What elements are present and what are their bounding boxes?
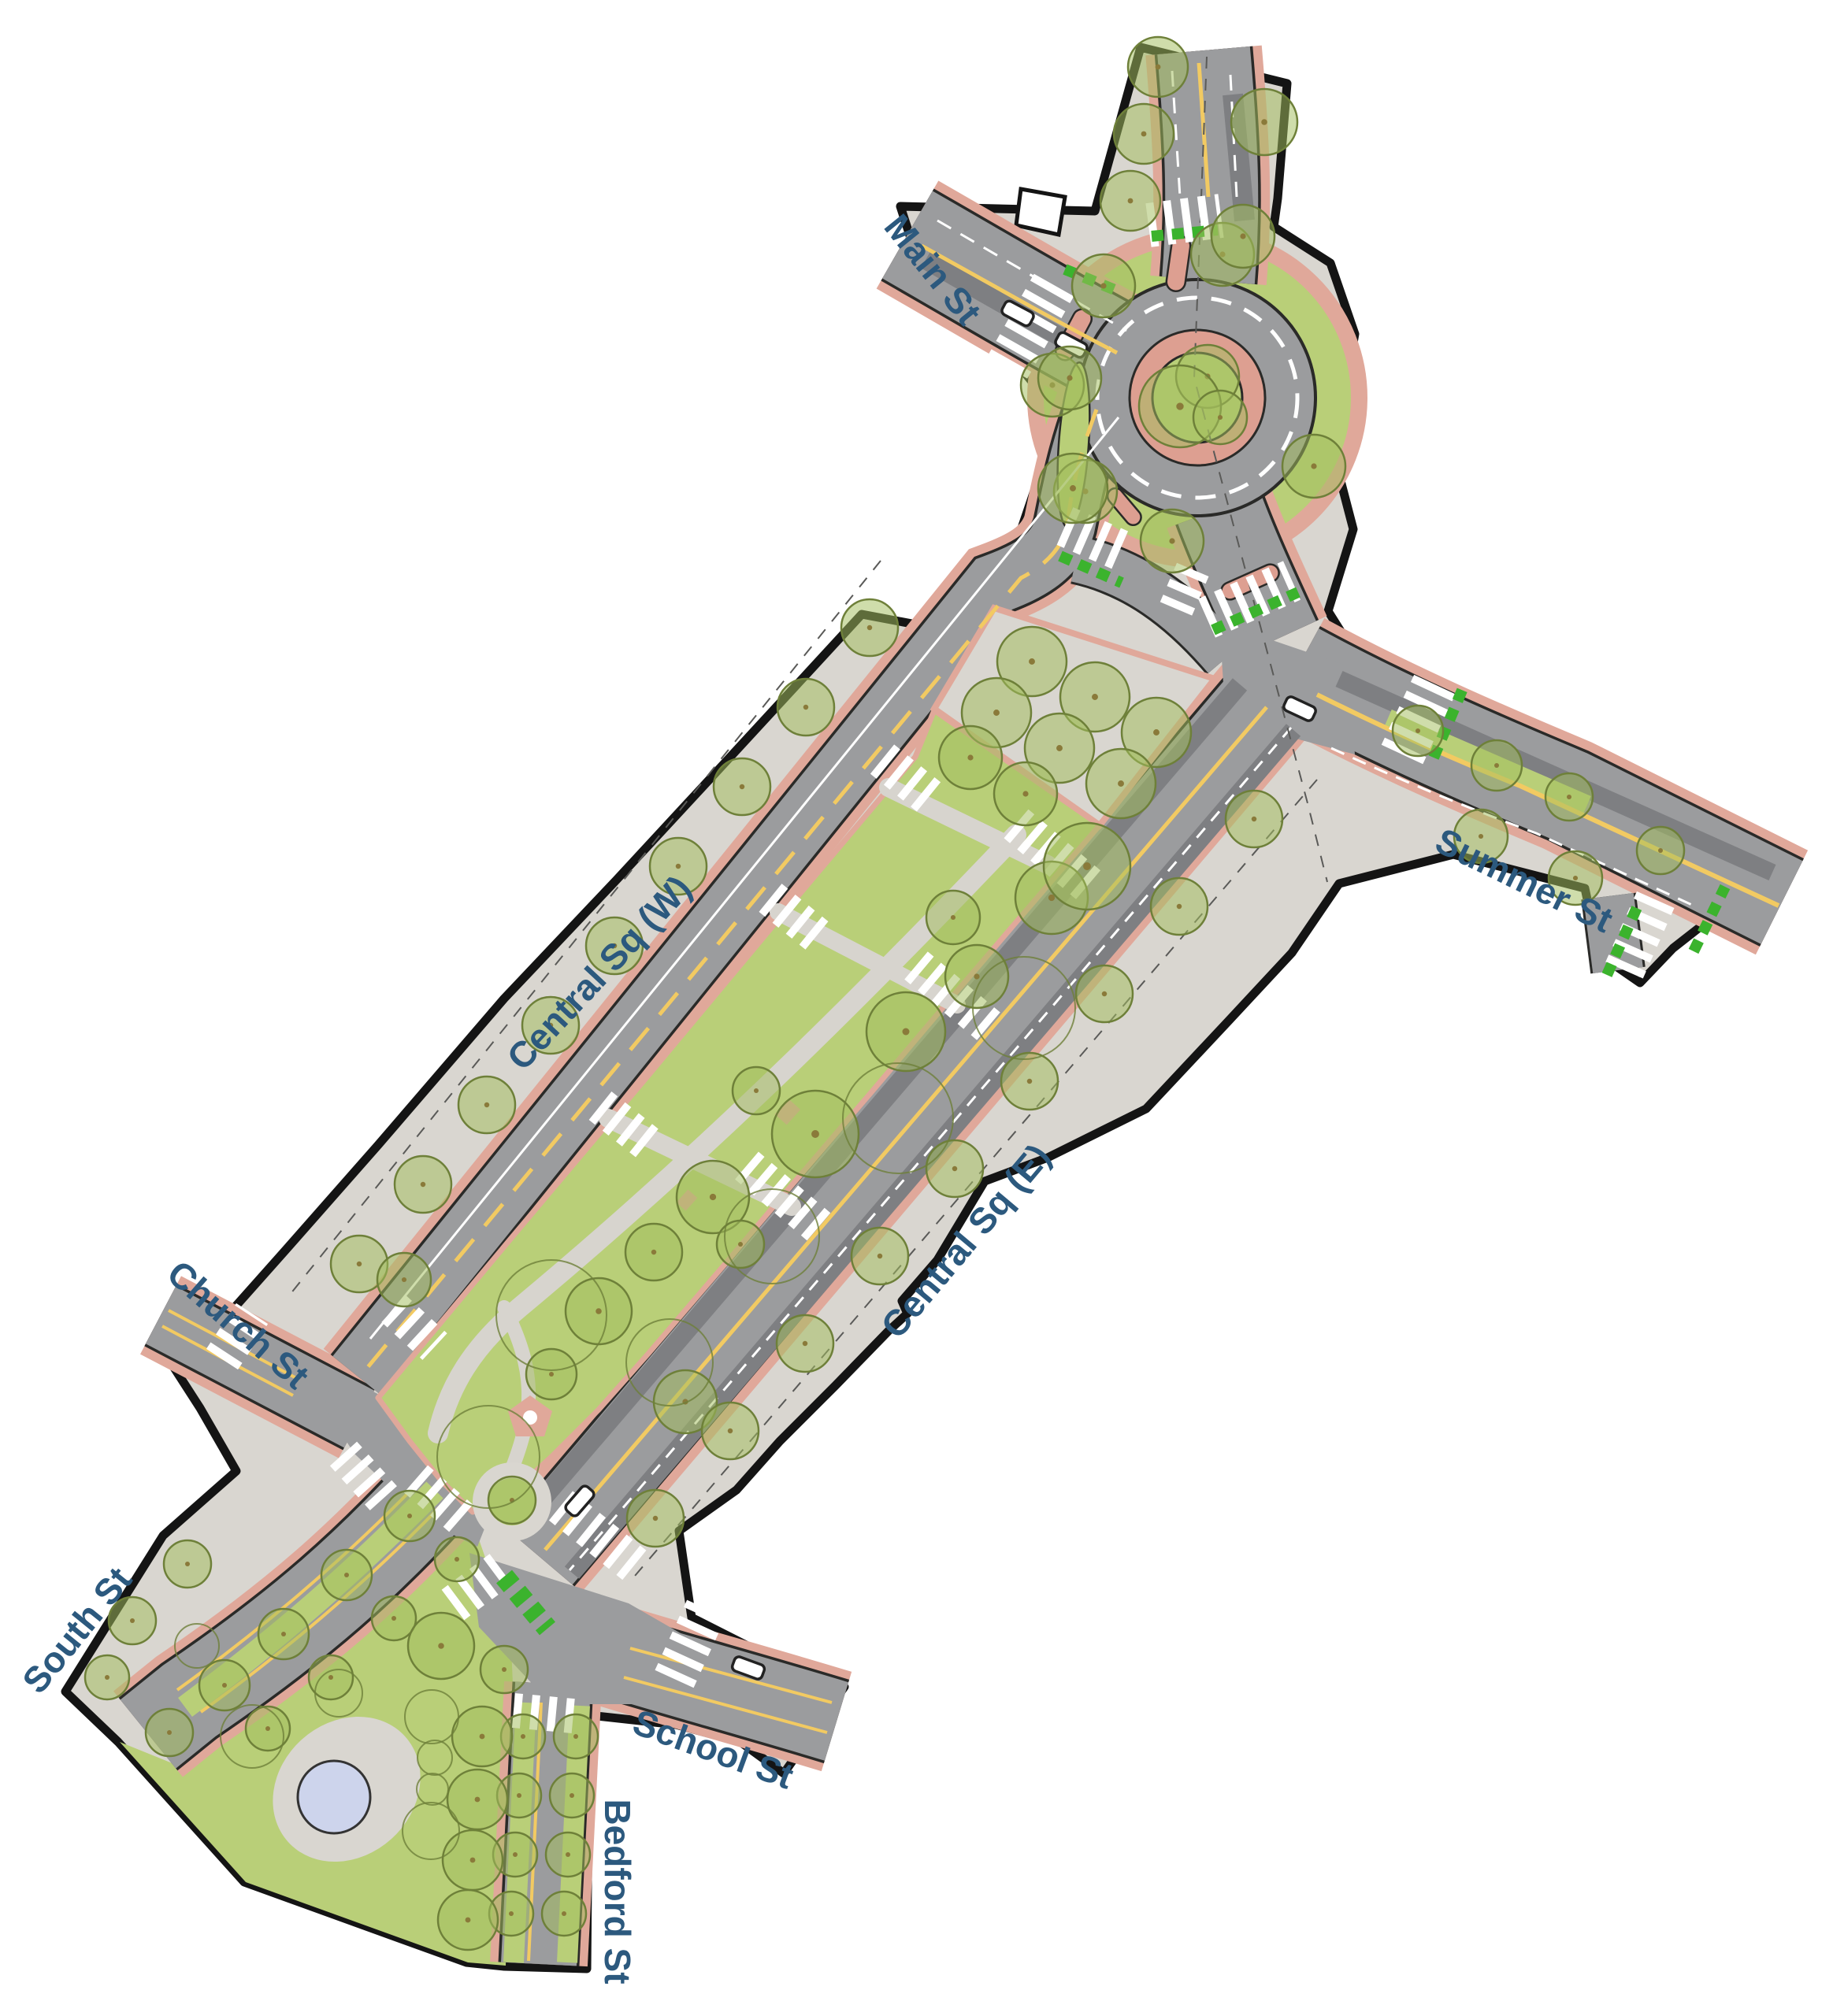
tree-trunk xyxy=(509,1911,514,1916)
tree-trunk xyxy=(1092,694,1098,700)
tree-trunk xyxy=(754,1088,759,1093)
tree-trunk xyxy=(1056,745,1063,751)
tree-trunk xyxy=(281,1632,286,1636)
concept-plan-canvas: Main St Summer St Central Sq (W) Central… xyxy=(0,0,1833,2016)
tree-trunk xyxy=(903,1028,910,1036)
tree-trunk xyxy=(952,1166,957,1171)
tree-trunk xyxy=(521,1734,525,1739)
tree-trunk xyxy=(513,1852,518,1857)
tree-trunk xyxy=(1029,658,1035,665)
tree-trunk xyxy=(710,1194,716,1200)
tree-trunk xyxy=(328,1675,333,1680)
tree-trunk xyxy=(1070,485,1076,491)
tree-trunk xyxy=(185,1562,190,1566)
tree-trunk xyxy=(993,710,1000,716)
tree-trunk xyxy=(803,705,808,710)
tree-trunk xyxy=(402,1277,406,1282)
tree-trunk xyxy=(344,1573,349,1577)
tree-trunk xyxy=(105,1675,109,1680)
tree-trunk xyxy=(484,1102,489,1107)
tree-trunk xyxy=(1153,729,1160,736)
tree-trunk xyxy=(1169,538,1174,543)
tree-trunk xyxy=(951,915,955,920)
tree-trunk xyxy=(728,1429,733,1433)
tree-trunk xyxy=(1118,780,1124,787)
tree-trunk xyxy=(740,784,744,789)
tree-trunk xyxy=(470,1858,476,1863)
tree-trunk xyxy=(596,1308,602,1314)
tree-trunk xyxy=(1311,463,1316,469)
tree-trunk xyxy=(1218,415,1223,420)
tree-trunk xyxy=(651,1250,656,1254)
tree-trunk xyxy=(1177,904,1182,909)
tree-trunk xyxy=(974,973,979,979)
tree-trunk xyxy=(811,1130,819,1138)
building-notch xyxy=(1016,189,1065,235)
tree-trunk xyxy=(475,1797,481,1803)
tree-trunk xyxy=(803,1341,807,1346)
tree-trunk xyxy=(1100,283,1106,288)
tree-trunk xyxy=(967,754,973,760)
tree-trunk xyxy=(1252,817,1256,821)
tree-trunk xyxy=(1022,791,1028,796)
tree-trunk xyxy=(1494,763,1499,768)
tree-trunk xyxy=(653,1516,658,1521)
site-plan-map: Main St Summer St Central Sq (W) Central… xyxy=(0,0,1833,2016)
tree-trunk xyxy=(1573,876,1578,880)
tree-trunk xyxy=(570,1793,574,1798)
crosswalks-layer xyxy=(222,216,1656,1717)
tree-trunk xyxy=(566,1852,570,1857)
tree-trunk xyxy=(407,1514,412,1518)
tree-trunk xyxy=(391,1616,396,1621)
pond xyxy=(298,1761,370,1833)
tree-trunk xyxy=(222,1683,227,1688)
tree-trunk xyxy=(738,1242,743,1247)
tree-trunk xyxy=(1416,728,1420,733)
tree-trunk xyxy=(1083,862,1091,870)
tree-trunk xyxy=(265,1726,270,1731)
tree-trunk xyxy=(466,1918,471,1923)
tree-trunk xyxy=(517,1793,521,1798)
tree-trunk xyxy=(1658,848,1663,853)
tree-trunk xyxy=(1240,233,1245,239)
tree-trunk xyxy=(502,1667,506,1672)
tree-trunk xyxy=(1067,375,1072,380)
tree-trunk xyxy=(130,1618,135,1623)
tree-trunk xyxy=(421,1182,425,1187)
tree-trunk xyxy=(1027,1079,1032,1084)
tree-trunk xyxy=(1176,402,1183,409)
tree-trunk xyxy=(455,1557,459,1562)
tree-trunk xyxy=(1567,795,1571,799)
tree-trunk xyxy=(167,1730,172,1735)
tree-trunk xyxy=(549,1372,554,1377)
tree-trunk xyxy=(867,625,872,630)
tree-trunk xyxy=(1156,65,1161,70)
tree-trunk xyxy=(1261,119,1267,125)
tree-trunk xyxy=(676,864,681,869)
tree-trunk xyxy=(562,1911,566,1916)
tree-trunk xyxy=(357,1262,362,1266)
tree-trunk xyxy=(878,1254,882,1258)
tree-trunk xyxy=(438,1643,444,1649)
tree-trunk xyxy=(1128,198,1134,204)
street-label-bedford-st: Bedford St xyxy=(597,1799,638,1984)
gazebo-roof xyxy=(523,1410,537,1425)
tree-trunk xyxy=(573,1734,578,1739)
tree-trunk xyxy=(480,1734,485,1740)
tree-trunk xyxy=(1102,991,1107,996)
tree-trunk xyxy=(1141,132,1147,137)
